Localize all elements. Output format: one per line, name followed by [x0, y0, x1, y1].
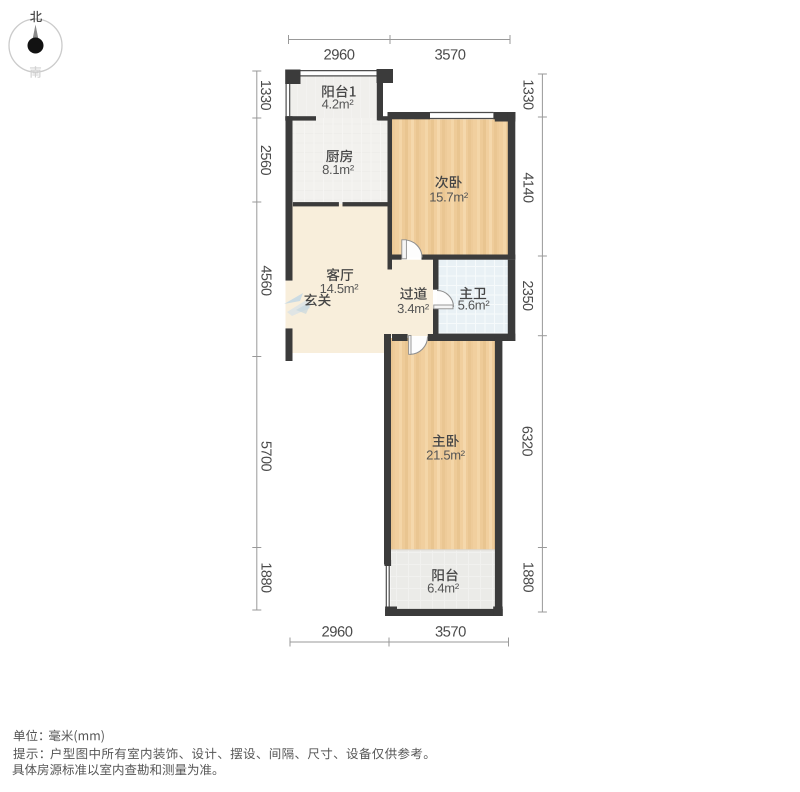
svg-text:1330: 1330: [257, 80, 273, 111]
svg-text:1880: 1880: [257, 562, 273, 593]
svg-text:3570: 3570: [435, 625, 466, 641]
svg-text:6.4m²: 6.4m²: [427, 581, 460, 596]
svg-text:5700: 5700: [257, 441, 273, 472]
svg-text:2560: 2560: [257, 145, 273, 176]
svg-text:6320: 6320: [518, 426, 534, 457]
svg-text:5.6m²: 5.6m²: [458, 298, 491, 313]
svg-text:3570: 3570: [435, 47, 466, 63]
svg-text:4140: 4140: [519, 172, 535, 203]
svg-text:1330: 1330: [519, 79, 535, 110]
svg-text:2960: 2960: [324, 47, 355, 63]
svg-text:1880: 1880: [519, 562, 535, 593]
svg-text:4560: 4560: [257, 265, 273, 296]
svg-text:8.1m²: 8.1m²: [322, 162, 355, 177]
svg-text:15.7m²: 15.7m²: [429, 190, 469, 205]
svg-text:4.2m²: 4.2m²: [322, 97, 355, 112]
svg-text:21.5m²: 21.5m²: [426, 448, 466, 463]
svg-text:2960: 2960: [322, 624, 353, 640]
svg-text:3.4m²: 3.4m²: [397, 301, 430, 316]
svg-text:14.5m²: 14.5m²: [320, 281, 360, 296]
svg-text:2350: 2350: [519, 280, 535, 311]
